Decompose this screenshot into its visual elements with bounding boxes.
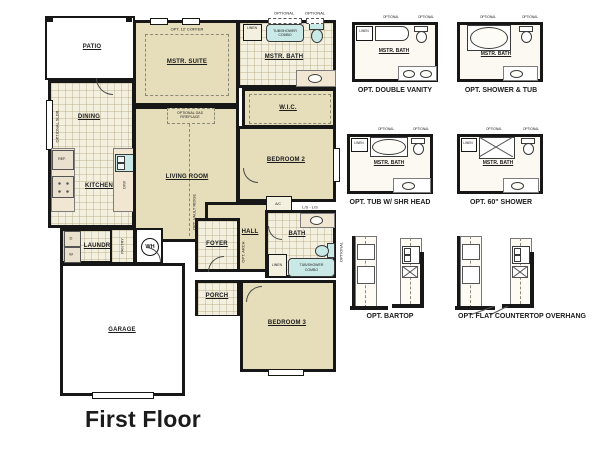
window xyxy=(182,18,200,25)
option-caption: OPT. 60" SHOWER xyxy=(470,199,532,206)
window xyxy=(268,369,304,376)
tub-shower-label: TUB/SHOWER COMBO xyxy=(296,263,328,271)
toilet xyxy=(523,143,534,155)
room-label-porch: PORCH xyxy=(206,293,229,299)
optional-label: OPTIONAL xyxy=(413,127,429,131)
optional-window xyxy=(306,18,324,24)
room-label-mstr-bath: MSTR. BATH xyxy=(265,54,304,60)
optional-label: OPTIONAL xyxy=(480,15,496,19)
sink xyxy=(511,182,524,190)
room-label-kitchen: KITCHEN xyxy=(85,183,113,189)
sink-basin xyxy=(404,255,411,262)
patio-post xyxy=(126,17,132,22)
ls-label: L/S - L/S xyxy=(302,205,318,210)
range xyxy=(357,266,375,284)
sink xyxy=(420,70,432,78)
shower-x-icon xyxy=(479,137,513,157)
window xyxy=(333,148,340,182)
linen-label: LINEN xyxy=(247,26,257,30)
room-label: MSTR. BATH xyxy=(481,51,511,57)
wall xyxy=(420,252,424,308)
room-label-foyer: FOYER xyxy=(206,241,228,247)
oval-tub xyxy=(470,27,508,49)
optional-label: OPTIONAL xyxy=(274,11,294,16)
ac-label: A/C xyxy=(275,202,281,206)
optional-slider-label: OPTIONAL SLDR. xyxy=(55,110,60,143)
range xyxy=(52,176,74,198)
room-label-garage: GARAGE xyxy=(108,327,136,333)
tub xyxy=(375,26,409,41)
linen-label: LINEN xyxy=(354,141,363,145)
room-label-patio: PATIO xyxy=(83,44,101,50)
room-label-wic: W.I.C. xyxy=(279,105,297,111)
toilet xyxy=(315,245,329,257)
ridge-line xyxy=(189,124,190,236)
optional-label: OPTIONAL xyxy=(418,15,434,19)
wall xyxy=(350,306,388,310)
floor-plan-sheet: PATIO OPT. 12' COFFER MSTR. SUITE LINEN … xyxy=(0,0,600,450)
option-caption: OPT. BARTOP xyxy=(367,313,414,320)
slider-window xyxy=(46,100,53,150)
option-caption: OPT. TUB W/ SHR HEAD xyxy=(350,199,431,206)
cabinet-x-icon xyxy=(512,266,528,278)
upper-cabinet xyxy=(357,244,375,260)
sink xyxy=(402,182,415,190)
sink-basin xyxy=(117,156,125,163)
optional-window xyxy=(268,18,302,24)
room-label: MSTR. BATH xyxy=(483,160,513,166)
pantry-label: PANTRY xyxy=(120,238,125,254)
room-label-mstr-suite: MSTR. SUITE xyxy=(167,59,207,65)
optional-label: OPTIONAL xyxy=(486,127,502,131)
fireplace-label: OPTIONAL GAS FIREPLACE xyxy=(170,111,210,119)
optional-label: OPTIONAL xyxy=(378,127,394,131)
dishwasher-label: D/W xyxy=(122,181,127,189)
sink-basin xyxy=(117,163,125,170)
toilet xyxy=(413,143,424,155)
room-label-living: LIVING ROOM xyxy=(166,174,209,180)
page-title: First Floor xyxy=(85,406,201,433)
optional-label: OPTIONAL xyxy=(522,15,538,19)
toilet xyxy=(416,31,427,43)
washer-label: W xyxy=(69,252,73,257)
optional-label: OPTIONAL xyxy=(305,11,325,16)
room-label-bath: BATH xyxy=(288,231,305,237)
sink xyxy=(403,70,415,78)
sink-basin xyxy=(404,248,411,255)
toilet xyxy=(521,31,532,43)
room-label-hall: HALL xyxy=(242,229,259,235)
linen-label: LINEN xyxy=(359,29,368,33)
garage-door xyxy=(92,392,154,399)
sink-basin xyxy=(514,255,521,262)
sink xyxy=(308,74,322,83)
wall xyxy=(530,252,534,308)
linen-label: LINEN xyxy=(272,263,282,267)
linen-label: LINEN xyxy=(463,141,472,145)
coffer-label: OPT. 12' COFFER xyxy=(171,27,204,32)
room-label-bedroom2: BEDROOM 2 xyxy=(267,157,305,163)
ref-label: REF. xyxy=(58,157,66,161)
room-label-dining: DINING xyxy=(78,114,100,120)
sink xyxy=(310,216,323,225)
sink xyxy=(510,70,523,78)
tub-shower-combo: TUB/SHOWER COMBO xyxy=(288,258,335,277)
optional-label-vertical: OPTIONAL xyxy=(339,242,344,262)
patio-post xyxy=(47,17,53,22)
option-caption: OPT. FLAT COUNTERTOP OVERHANG xyxy=(458,313,586,320)
coffer-outline xyxy=(145,34,229,96)
optional-label: OPTIONAL xyxy=(383,15,399,19)
option-caption: OPT. SHOWER & TUB xyxy=(465,87,537,94)
cabinet-x-icon xyxy=(402,266,418,278)
opt-arch-label: OPT. ARCH xyxy=(241,241,246,262)
room-bedroom2 xyxy=(237,126,336,202)
upper-cabinet xyxy=(462,244,480,260)
wall xyxy=(392,304,424,308)
oval-tub xyxy=(372,139,406,155)
room-label-bedroom3: BEDROOM 3 xyxy=(268,320,306,326)
tub-shower-label: TUB/SHOWER COMBO xyxy=(270,29,300,37)
room-label: MSTR. BATH xyxy=(374,160,404,166)
sink-basin xyxy=(514,248,521,255)
room-label: MSTR. BATH xyxy=(379,48,409,54)
option-caption: OPT. DOUBLE VANITY xyxy=(358,87,432,94)
toilet xyxy=(311,29,323,43)
tub-shower-combo: TUB/SHOWER COMBO xyxy=(266,24,304,42)
window xyxy=(150,18,168,25)
optional-label: OPTIONAL xyxy=(523,127,539,131)
range xyxy=(462,266,480,284)
dryer-label: D xyxy=(70,236,73,241)
